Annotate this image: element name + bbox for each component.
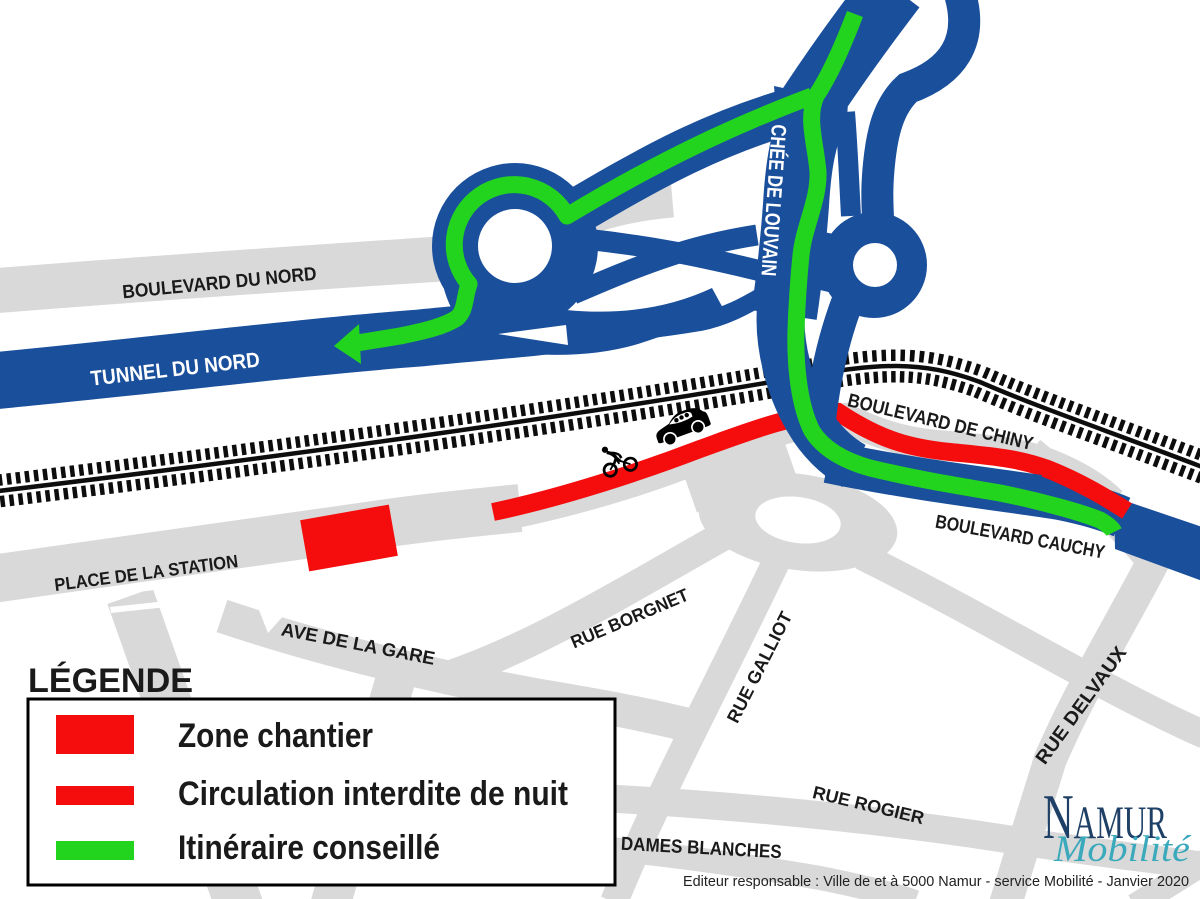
svg-text:Mobilité: Mobilité [1053, 829, 1192, 870]
svg-text:Circulation interdite de nuit: Circulation interdite de nuit [178, 775, 568, 813]
svg-text:Editeur responsable : Ville de: Editeur responsable : Ville de et à 5000… [683, 874, 1189, 890]
svg-text:LÉGENDE: LÉGENDE [28, 662, 193, 700]
svg-text:Zone chantier: Zone chantier [178, 717, 373, 755]
svg-text:Itinéraire conseillé: Itinéraire conseillé [178, 829, 440, 867]
